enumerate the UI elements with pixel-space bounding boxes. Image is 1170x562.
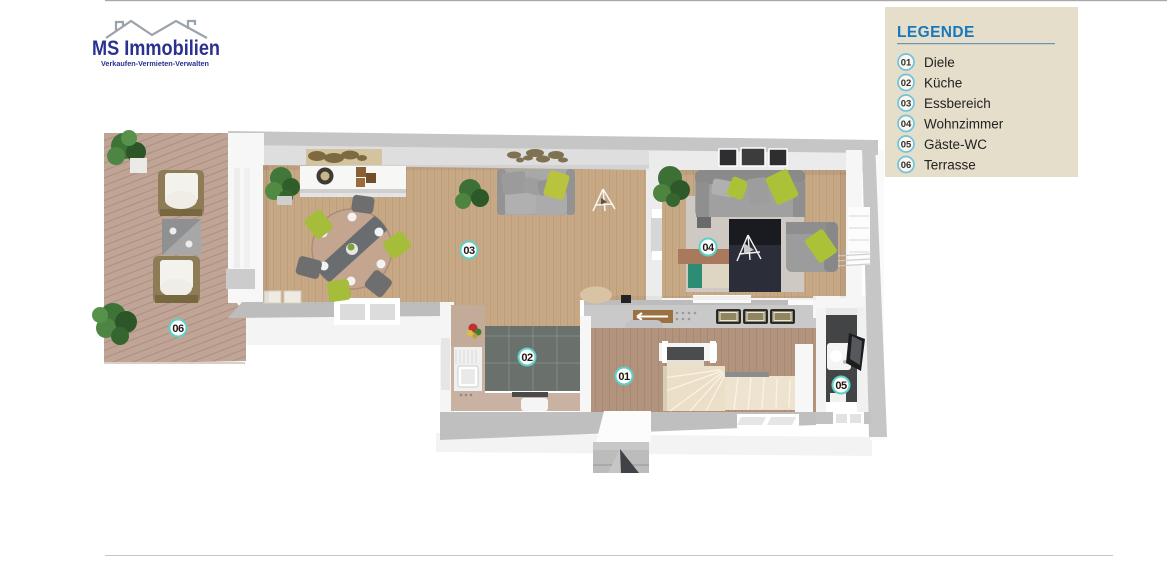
svg-text:06: 06 xyxy=(172,323,184,335)
svg-text:01: 01 xyxy=(618,371,630,383)
svg-text:MS Immobilien: MS Immobilien xyxy=(92,36,220,60)
svg-text:Küche: Küche xyxy=(924,76,962,91)
svg-text:LEGENDE: LEGENDE xyxy=(897,24,975,41)
svg-text:01: 01 xyxy=(901,58,912,69)
svg-text:Essbereich: Essbereich xyxy=(924,96,991,111)
svg-text:04: 04 xyxy=(901,119,912,130)
svg-text:Gäste-WC: Gäste-WC xyxy=(924,137,987,152)
svg-text:03: 03 xyxy=(901,99,912,110)
svg-text:02: 02 xyxy=(901,78,912,89)
svg-text:Wohnzimmer: Wohnzimmer xyxy=(924,117,1004,132)
svg-text:Terrasse: Terrasse xyxy=(924,158,976,173)
svg-text:05: 05 xyxy=(901,140,912,151)
svg-text:Verkaufen-Vermieten-Verwalten: Verkaufen-Vermieten-Verwalten xyxy=(101,59,209,68)
svg-text:04: 04 xyxy=(702,242,715,254)
svg-text:Diele: Diele xyxy=(924,55,955,70)
svg-text:02: 02 xyxy=(521,352,533,364)
svg-text:03: 03 xyxy=(463,245,475,257)
svg-text:06: 06 xyxy=(901,160,912,171)
svg-text:05: 05 xyxy=(835,380,847,392)
